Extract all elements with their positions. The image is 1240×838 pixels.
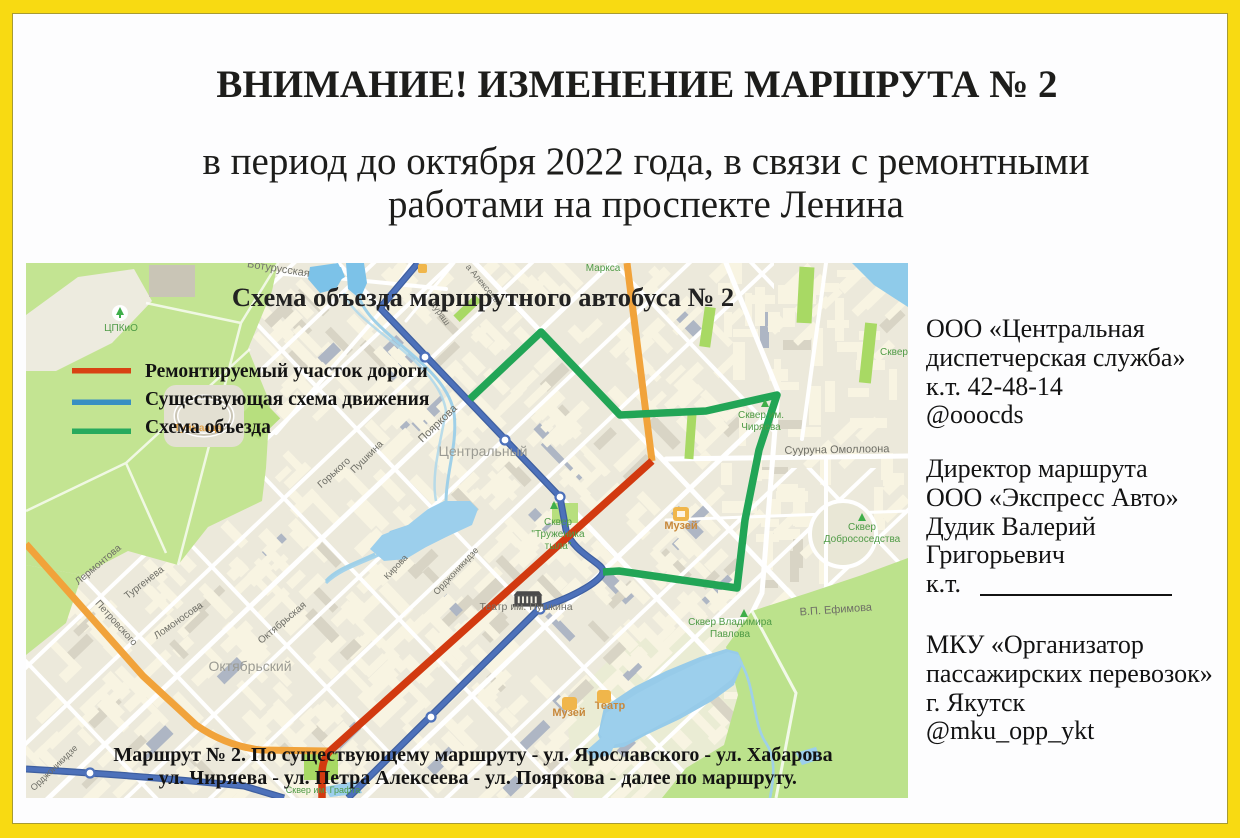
svg-text:Театр им. Пушкина: Театр им. Пушкина xyxy=(479,601,572,613)
svg-text:Сквер Владимира: Сквер Владимира xyxy=(688,617,772,628)
svg-text:Сквер: Сквер xyxy=(544,517,572,528)
svg-text:Чиряева: Чиряева xyxy=(741,422,781,433)
svg-text:тыла": тыла" xyxy=(545,541,572,552)
svg-text:Схема объезда маршрутного авто: Схема объезда маршрутного автобуса № 2 xyxy=(232,282,734,312)
svg-text:Сууруна Омоллоона: Сууруна Омоллоона xyxy=(784,443,890,457)
svg-text:Октябрьский: Октябрьский xyxy=(208,658,291,674)
svg-text:Центральный: Центральный xyxy=(439,443,528,459)
svg-text:Маршрут № 2. По существующему: Маршрут № 2. По существующему маршруту -… xyxy=(113,744,832,766)
svg-text:ЦПКиО: ЦПКиО xyxy=(104,323,138,334)
svg-text:Добрососедства: Добрососедства xyxy=(824,533,901,545)
svg-text:Сквер: Сквер xyxy=(880,347,908,358)
svg-text:Павлова: Павлова xyxy=(710,629,751,640)
svg-text:- ул. Чиряева - ул. Петра Алек: - ул. Чиряева - ул. Петра Алексеева - ул… xyxy=(147,767,797,789)
svg-text:Маркса: Маркса xyxy=(586,263,621,274)
svg-text:Схема объезда: Схема объезда xyxy=(145,417,271,438)
svg-text:Сквер: Сквер xyxy=(848,522,876,533)
svg-text:Музей: Музей xyxy=(664,520,697,532)
svg-text:Существующая схема движения: Существующая схема движения xyxy=(145,389,430,410)
svg-text:Сквер им.: Сквер им. xyxy=(738,410,784,421)
svg-text:Ремонтируемый участок дороги: Ремонтируемый участок дороги xyxy=(145,361,428,382)
svg-text:"Труженика: "Труженика xyxy=(531,529,585,540)
